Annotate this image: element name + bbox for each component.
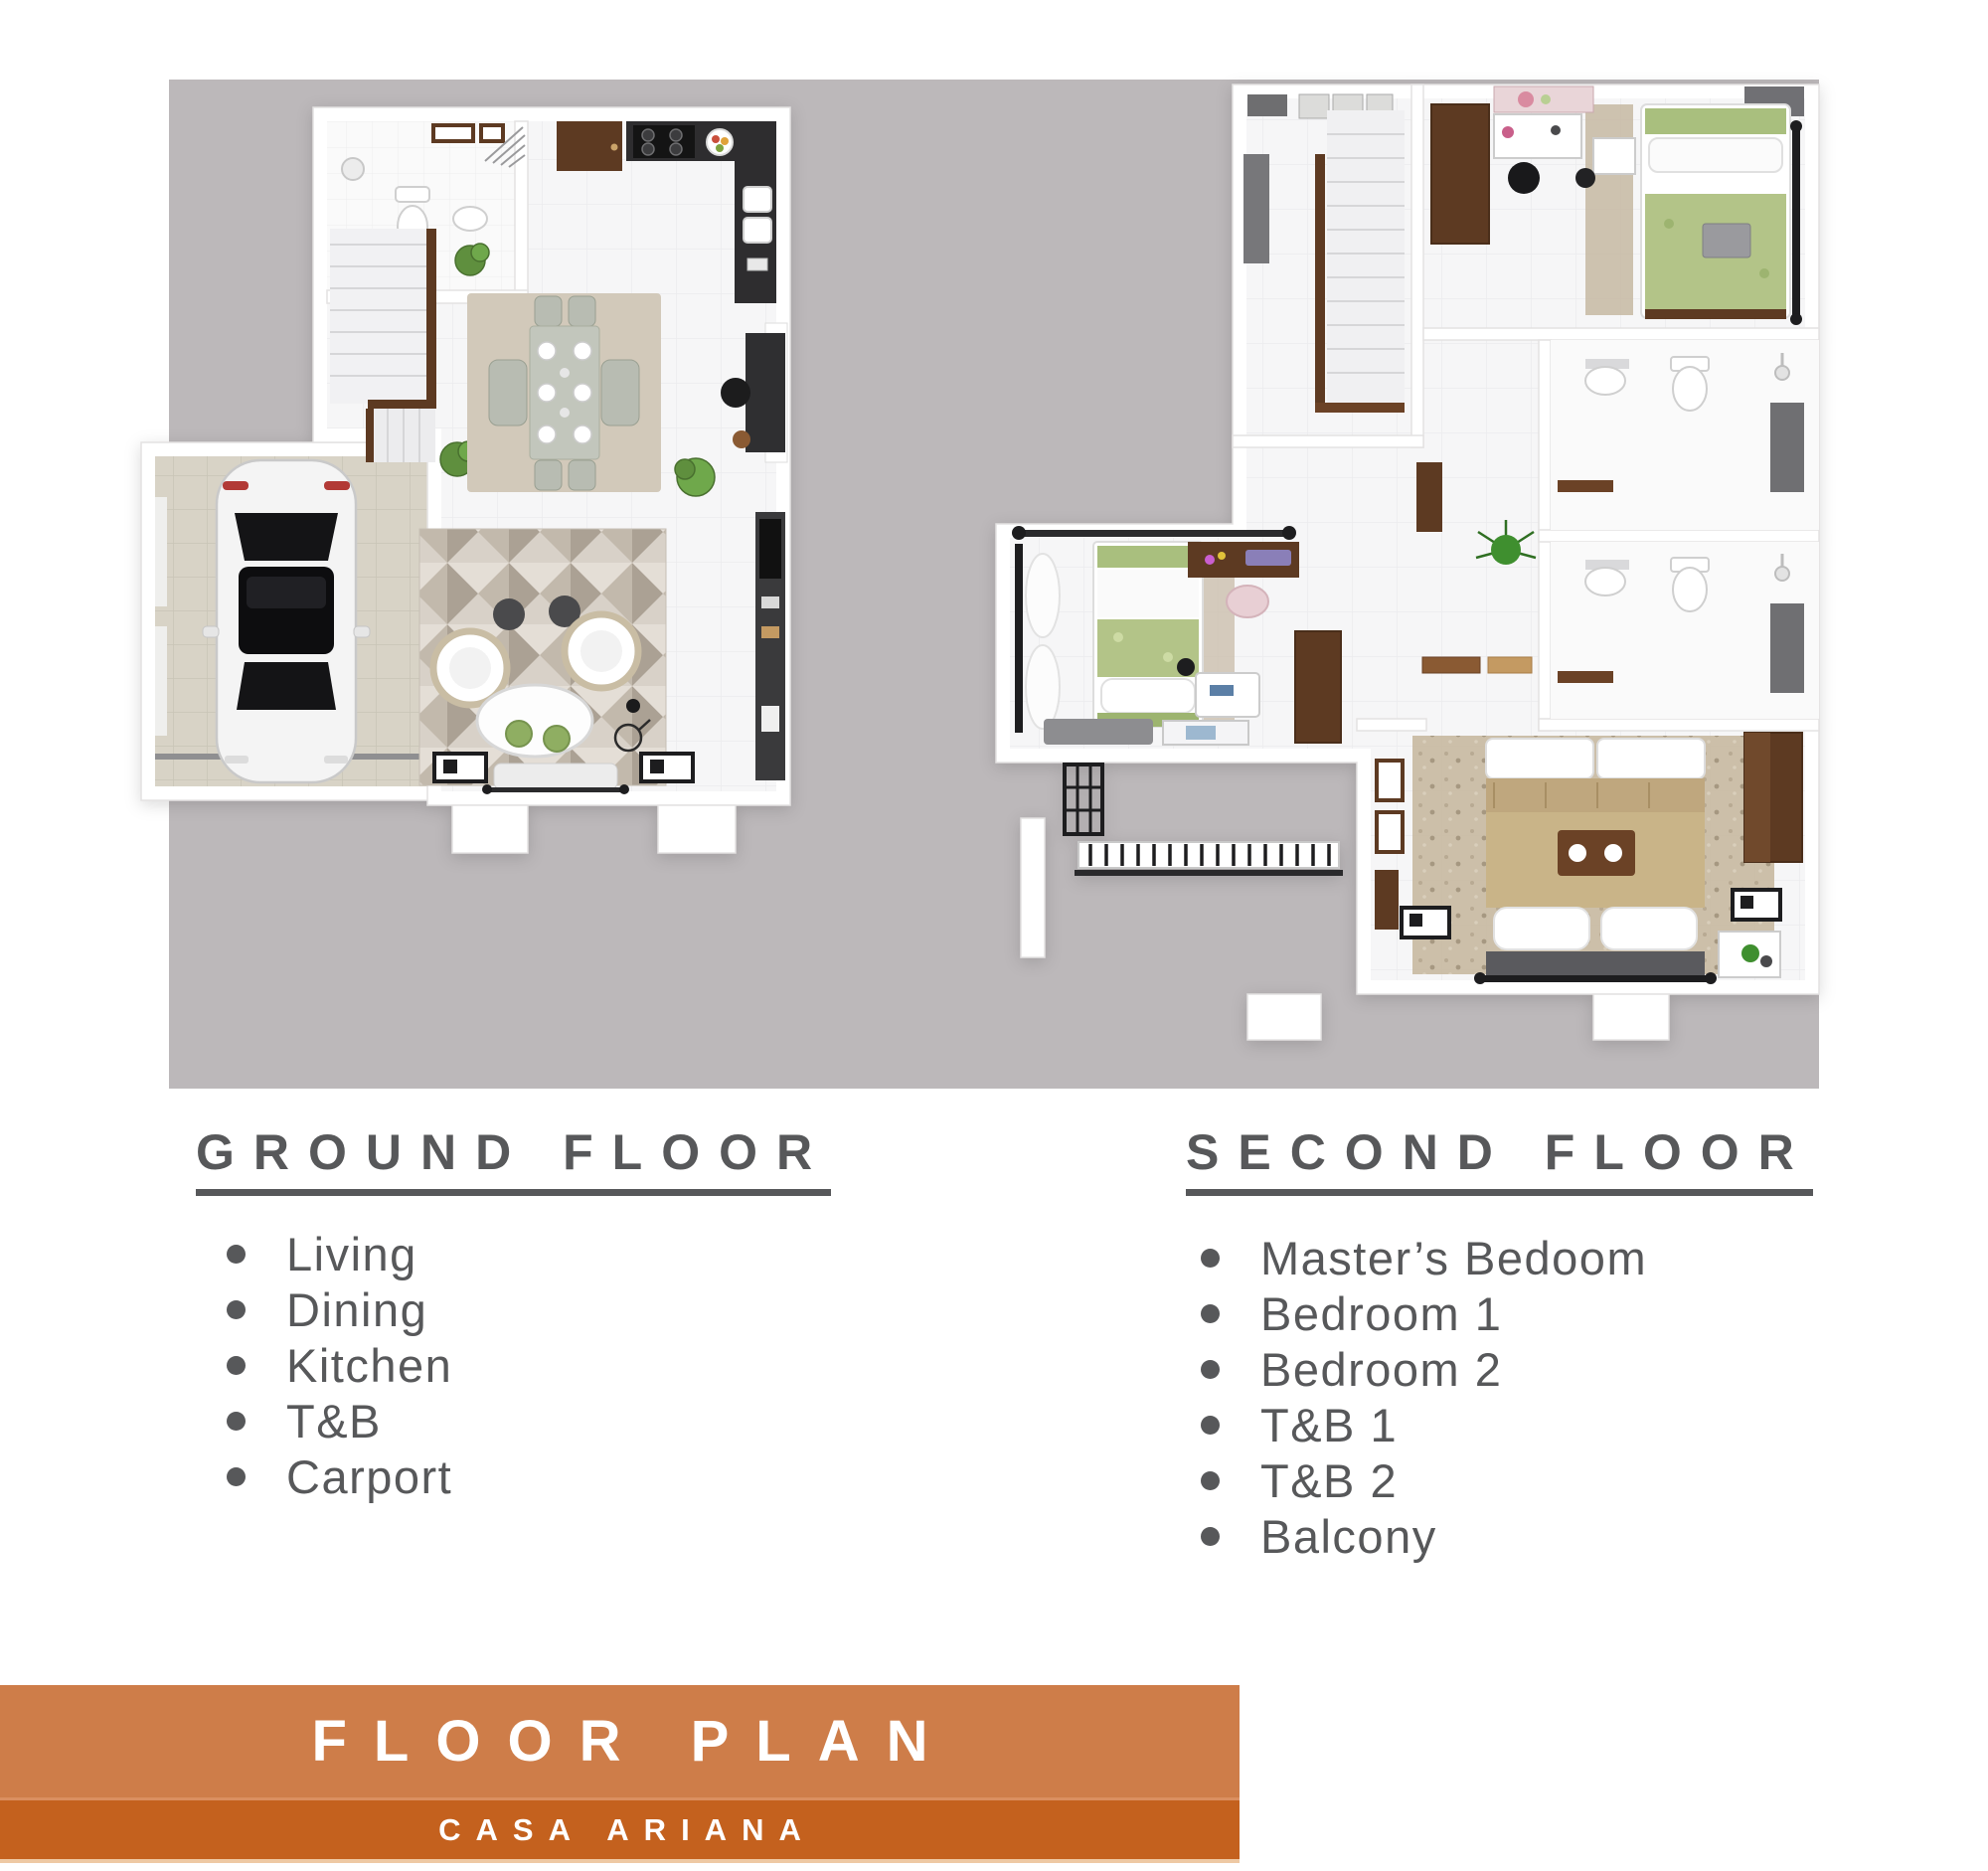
bullet-icon (1201, 1416, 1220, 1435)
bullet-icon (227, 1356, 246, 1375)
list-item-label: T&B 1 (1260, 1398, 1398, 1452)
dining-set (467, 293, 661, 492)
second-floor-list: Master’s Bedoom Bedroom 1 Bedroom 2 T&B … (1201, 1230, 1647, 1564)
banner-subtitle-band: CASA ARIANA (0, 1797, 1240, 1859)
list-item-label: Carport (286, 1449, 452, 1504)
list-item-label: Dining (286, 1282, 427, 1337)
bullet-icon (227, 1300, 246, 1319)
list-item-label: Balcony (1260, 1509, 1437, 1564)
list-item: T&B 1 (1201, 1397, 1647, 1452)
list-item: Bedroom 2 (1201, 1341, 1647, 1397)
banner-subtitle: CASA ARIANA (438, 1812, 816, 1848)
list-item-label: Bedroom 1 (1260, 1286, 1502, 1341)
ground-floor-list: Living Dining Kitchen T&B Carport (227, 1226, 452, 1504)
list-item-label: T&B (286, 1394, 382, 1448)
bullet-icon (1201, 1249, 1220, 1268)
list-item-label: T&B 2 (1260, 1453, 1398, 1508)
list-item: Master’s Bedoom (1201, 1230, 1647, 1285)
car (203, 460, 370, 782)
bullet-icon (227, 1467, 246, 1486)
list-item-label: Living (286, 1227, 417, 1281)
list-item-label: Kitchen (286, 1338, 452, 1393)
ground-floor-plan-image (139, 70, 815, 1014)
list-item-label: Bedroom 2 (1260, 1342, 1502, 1397)
list-item: Bedroom 1 (1201, 1285, 1647, 1341)
master-bedroom (1375, 733, 1802, 984)
list-item: Kitchen (227, 1337, 452, 1393)
bullet-icon (227, 1412, 246, 1431)
bullet-icon (1201, 1527, 1220, 1546)
second-floor-plan-image (949, 75, 1824, 1094)
ground-floor-heading: GROUND FLOOR (196, 1127, 831, 1196)
banner-title: FLOOR PLAN (312, 1708, 955, 1775)
list-item: Living (227, 1226, 452, 1281)
bullet-icon (1201, 1471, 1220, 1490)
list-item: Balcony (1201, 1508, 1647, 1564)
bullet-icon (1201, 1360, 1220, 1379)
tandb-1 (1551, 340, 1819, 530)
list-item-label: Master’s Bedoom (1260, 1231, 1647, 1285)
list-item: Carport (227, 1448, 452, 1504)
second-floor-heading: SECOND FLOOR (1186, 1127, 1813, 1196)
banner-title-band: FLOOR PLAN (0, 1685, 1240, 1797)
floor-plan-poster: GROUND FLOOR Living Dining Kitchen T&B C… (0, 0, 1988, 1871)
living-room (419, 529, 666, 785)
bullet-icon (1201, 1304, 1220, 1323)
balcony (1021, 765, 1343, 957)
list-item: T&B (227, 1393, 452, 1448)
list-item: Dining (227, 1281, 452, 1337)
list-item: T&B 2 (1201, 1452, 1647, 1508)
tandb-2 (1551, 542, 1819, 719)
bullet-icon (227, 1245, 246, 1264)
banner-bottom-strip (0, 1859, 1240, 1863)
media-console (755, 512, 785, 780)
banner: FLOOR PLAN CASA ARIANA (0, 1685, 1240, 1863)
